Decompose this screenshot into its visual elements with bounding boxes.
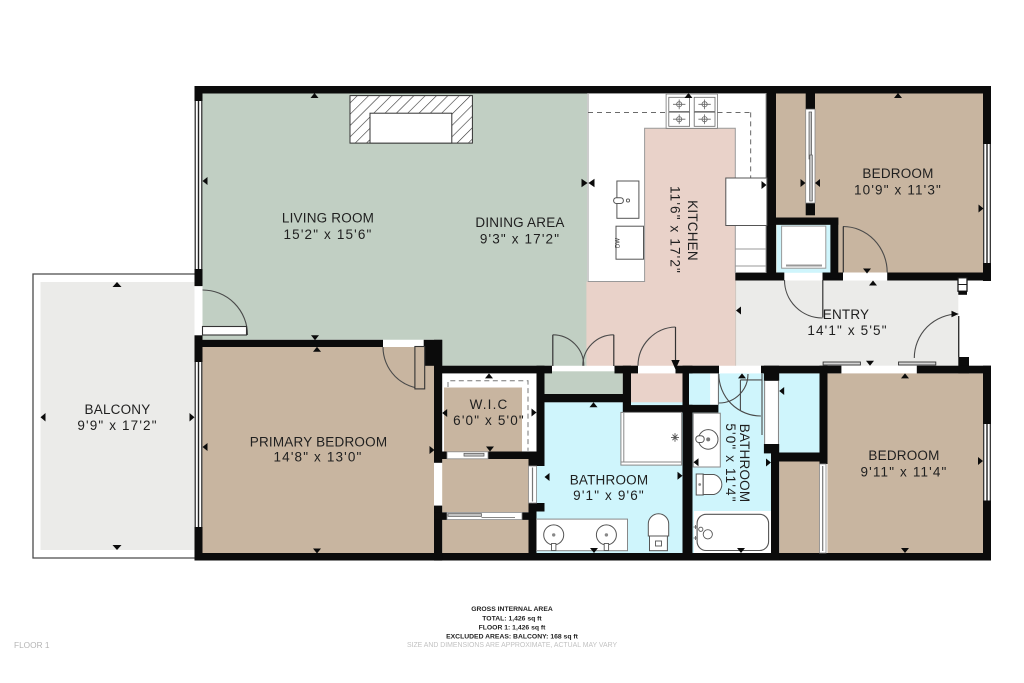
- svg-text:ENTRY: ENTRY: [823, 307, 870, 322]
- svg-text:FLOOR 1: FLOOR 1: [14, 640, 50, 650]
- svg-text:BEDROOM: BEDROOM: [862, 166, 933, 181]
- svg-text:FLOOR 1: 1,426 sq ft: FLOOR 1: 1,426 sq ft: [479, 625, 547, 632]
- svg-text:DW: DW: [616, 238, 622, 248]
- svg-text:SIZE AND DIMENSIONS ARE APPROX: SIZE AND DIMENSIONS ARE APPROXIMATE, ACT…: [407, 642, 617, 649]
- svg-text:10'9" x 11'3": 10'9" x 11'3": [854, 183, 942, 198]
- svg-text:9'1" x 9'6": 9'1" x 9'6": [573, 488, 645, 503]
- svg-text:BALCONY: BALCONY: [85, 402, 151, 417]
- svg-text:9'9" x 17'2": 9'9" x 17'2": [77, 418, 157, 433]
- svg-text:5'0" x 11'4": 5'0" x 11'4": [723, 423, 738, 502]
- svg-text:KITCHEN: KITCHEN: [685, 200, 700, 261]
- svg-text:9'11" x 11'4": 9'11" x 11'4": [861, 465, 948, 480]
- svg-text:BATHROOM: BATHROOM: [737, 424, 752, 503]
- svg-text:PRIMARY BEDROOM: PRIMARY BEDROOM: [250, 435, 388, 450]
- svg-text:14'8" x 13'0": 14'8" x 13'0": [274, 450, 363, 465]
- svg-text:9'3" x 17'2": 9'3" x 17'2": [480, 231, 560, 246]
- svg-text:11'6" x 17'2": 11'6" x 17'2": [668, 186, 683, 274]
- svg-text:15'2" x 15'6": 15'2" x 15'6": [284, 227, 373, 242]
- svg-text:6'0" x 5'0": 6'0" x 5'0": [453, 413, 525, 428]
- svg-text:14'1" x 5'5": 14'1" x 5'5": [807, 323, 887, 338]
- svg-text:EXCLUDED AREAS: BALCONY: 168 s: EXCLUDED AREAS: BALCONY: 168 sq ft: [446, 634, 579, 641]
- svg-text:TOTAL: 1,426 sq ft: TOTAL: 1,426 sq ft: [482, 616, 542, 623]
- svg-text:GROSS INTERNAL AREA: GROSS INTERNAL AREA: [471, 606, 553, 613]
- svg-text:BEDROOM: BEDROOM: [868, 448, 939, 463]
- svg-text:DINING AREA: DINING AREA: [475, 215, 564, 230]
- svg-text:BATHROOM: BATHROOM: [570, 473, 649, 488]
- svg-text:LIVING ROOM: LIVING ROOM: [282, 211, 374, 226]
- svg-text:W.I.C: W.I.C: [470, 397, 509, 412]
